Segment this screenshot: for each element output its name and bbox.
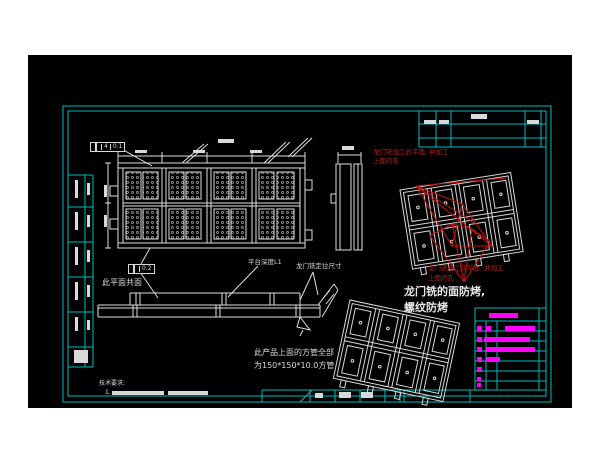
- flatness-tolerance: 0.2: [139, 266, 154, 272]
- white-text-placeholder: [135, 150, 147, 153]
- side-view: [331, 152, 362, 250]
- white-text-placeholder: [75, 282, 78, 300]
- white-text-placeholder: [168, 391, 208, 395]
- white-text-placeholder: [75, 212, 78, 230]
- magenta-text-placeholder: [477, 383, 481, 387]
- tube-note-line2: 为150*150*10.0方管: [254, 362, 334, 370]
- white-text-placeholder: [87, 320, 90, 330]
- gantry-locate-note: 龙门铣定位尺寸: [296, 263, 342, 270]
- magenta-text-placeholder: [477, 337, 482, 342]
- magenta-text-placeholder: [486, 357, 500, 362]
- white-text-placeholder: [315, 393, 323, 398]
- magenta-text-placeholder: [505, 326, 535, 331]
- magenta-text-placeholder: [489, 313, 518, 318]
- plan-view: [105, 138, 312, 264]
- white-text-placeholder: [471, 114, 487, 119]
- left-margin-table: [68, 175, 93, 367]
- white-text-placeholder: [75, 247, 78, 265]
- flatness-count: 4: [101, 144, 110, 150]
- front-view: [98, 284, 338, 336]
- white-text-placeholder: [87, 250, 90, 262]
- white-text-placeholder: [342, 146, 354, 150]
- tech-req-item-no: 1.: [105, 390, 111, 396]
- magenta-text-placeholder: [486, 347, 535, 352]
- white-text-placeholder: [250, 150, 262, 153]
- magenta-text-placeholder: [477, 326, 482, 331]
- tech-req-title: 技术要求:: [99, 381, 125, 387]
- white-text-placeholder: [87, 183, 90, 195]
- white-text-placeholder: [439, 120, 449, 124]
- white-text-placeholder: [87, 285, 90, 297]
- flatness-icon: [91, 144, 101, 150]
- white-text-placeholder: [361, 392, 373, 398]
- white-text-placeholder: [104, 215, 107, 227]
- magenta-text-placeholder: [477, 367, 482, 372]
- leader-lines: [140, 266, 318, 300]
- magenta-text-placeholder: [477, 357, 482, 362]
- bake-note-line1: 龙门铣的面防烤,: [404, 286, 485, 297]
- cad-screenshot: 4 0.1 0.2 龙门铣加工此平面, 并加工 上面的孔 龙门铣加工此平面, 并…: [0, 0, 600, 450]
- white-text-placeholder: [339, 392, 351, 398]
- white-text-placeholder: [75, 180, 78, 198]
- tube-note-line1: 此产品上面的方管全部: [254, 349, 334, 357]
- white-text-placeholder: [218, 139, 234, 143]
- white-text-placeholder: [112, 391, 164, 395]
- red-note-bottom-line1: 龙门铣加工此平面, 并加工: [428, 265, 504, 272]
- flatness-tolerance: 0.1: [110, 144, 125, 150]
- bake-note-line2: 螺纹防烤: [404, 302, 448, 313]
- flatness-icon: [129, 266, 139, 272]
- white-text-placeholder: [87, 215, 90, 227]
- red-note-bottom-line2: 上面的孔: [428, 275, 454, 282]
- flatness-callout-bottom: 0.2: [128, 264, 155, 274]
- white-text-placeholder: [74, 350, 88, 363]
- magenta-text-placeholder: [477, 347, 482, 352]
- white-text-placeholder: [193, 150, 205, 153]
- platform-depth-note: 平台深度L1: [248, 259, 282, 266]
- coplanar-note: 此平面共面: [102, 279, 142, 287]
- drawing-layer: [0, 0, 600, 450]
- magenta-text-placeholder: [486, 326, 491, 331]
- magenta-text-placeholder: [484, 337, 530, 342]
- white-text-placeholder: [104, 185, 107, 197]
- white-text-placeholder: [75, 317, 78, 331]
- white-text-placeholder: [527, 120, 539, 124]
- red-note-top-line1: 龙门铣加工此平面, 并加工: [373, 149, 449, 156]
- magenta-text-placeholder: [477, 377, 481, 381]
- iso-view-bottom: [332, 300, 460, 408]
- white-text-placeholder: [424, 120, 436, 124]
- red-note-top-line2: 上面的孔: [373, 158, 399, 165]
- flatness-callout-top: 4 0.1: [90, 142, 125, 152]
